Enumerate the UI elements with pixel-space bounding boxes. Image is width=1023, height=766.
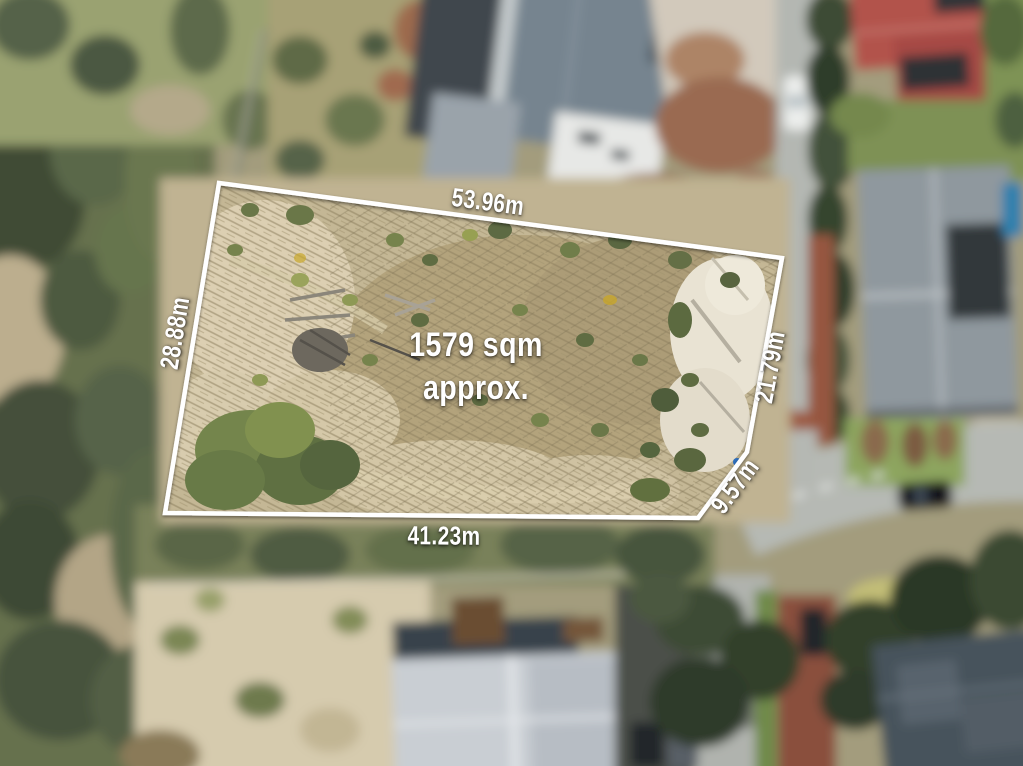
gray-roof-house — [858, 165, 1019, 420]
pool — [1002, 182, 1023, 237]
area-value: 1579 sqm — [409, 324, 543, 367]
area-approx: approx. — [409, 367, 543, 410]
bottom-right-house — [872, 628, 1023, 766]
area-label: 1579 sqm approx. — [409, 324, 543, 410]
aerial-photo: 53.96m 28.88m 21.79m 9.57m 41.23m 1579 s… — [0, 0, 1023, 766]
dimension-bottom-label: 41.23m — [407, 520, 480, 552]
